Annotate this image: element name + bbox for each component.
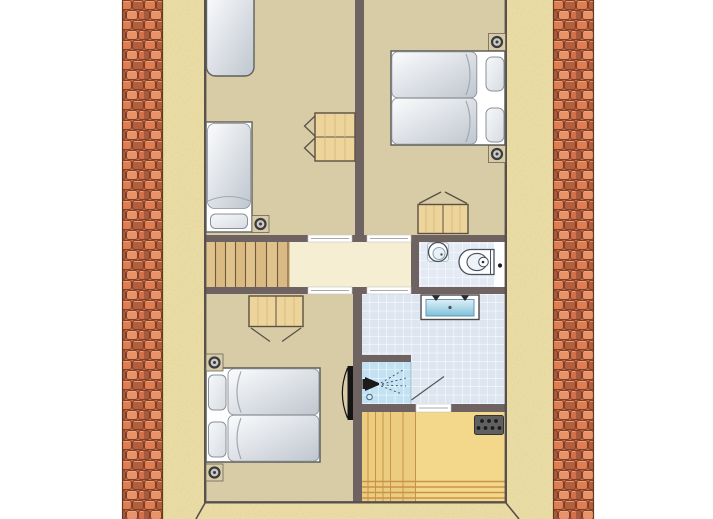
landing-floor [290, 242, 411, 287]
wall-wc-left [411, 242, 419, 287]
wall-light [489, 146, 506, 163]
double-bed [206, 368, 320, 462]
drain [448, 306, 451, 309]
mattress-2 [228, 415, 319, 461]
roof-tiles-right [553, 0, 594, 519]
mattress-1 [228, 369, 319, 415]
pillow [486, 57, 504, 91]
drain [367, 394, 373, 400]
roof-tiles-left [122, 0, 163, 519]
hand-basin [428, 243, 449, 262]
wall-corridor-bottom-mid [352, 287, 367, 294]
wall-corridor-top-mid [352, 235, 367, 242]
floor-plan [0, 0, 713, 519]
stucco-right [507, 0, 553, 519]
double-washbasin [421, 295, 479, 320]
shower [362, 362, 411, 404]
stucco-bottom [196, 503, 511, 519]
door-stop-dot [498, 263, 502, 267]
wall-light [206, 354, 223, 371]
single-bed-2 [206, 122, 252, 232]
toilet [459, 250, 494, 275]
wall-corridor-bottom-left [206, 287, 308, 294]
wall-center-lower [353, 294, 362, 503]
wall-light [252, 216, 269, 233]
stucco-left [163, 0, 205, 519]
wall-bath-bottom-right [451, 404, 505, 412]
pillow [209, 375, 227, 410]
duvet [208, 124, 251, 209]
pillow [209, 422, 227, 457]
wall-corridor-bottom-right [411, 287, 505, 294]
mattress-2 [392, 98, 477, 144]
wall-shower-top [362, 355, 411, 362]
staircase [206, 242, 290, 287]
wall-bath-bottom-left [353, 404, 416, 412]
wall-corridor-top-left [206, 235, 308, 242]
double-bed [391, 51, 505, 145]
single-bed-1 [207, 0, 255, 76]
wall-light [489, 34, 506, 51]
hall-floor-plank-zone [362, 412, 416, 503]
wall-light [206, 464, 223, 481]
wall-center-upper [355, 0, 364, 242]
pillow [211, 214, 248, 229]
pillow [486, 108, 504, 142]
wall-corridor-top-right [411, 235, 505, 242]
mattress-1 [392, 52, 477, 98]
vent-grille [475, 416, 504, 435]
floor-plan-page [0, 0, 713, 519]
hall [475, 416, 504, 435]
